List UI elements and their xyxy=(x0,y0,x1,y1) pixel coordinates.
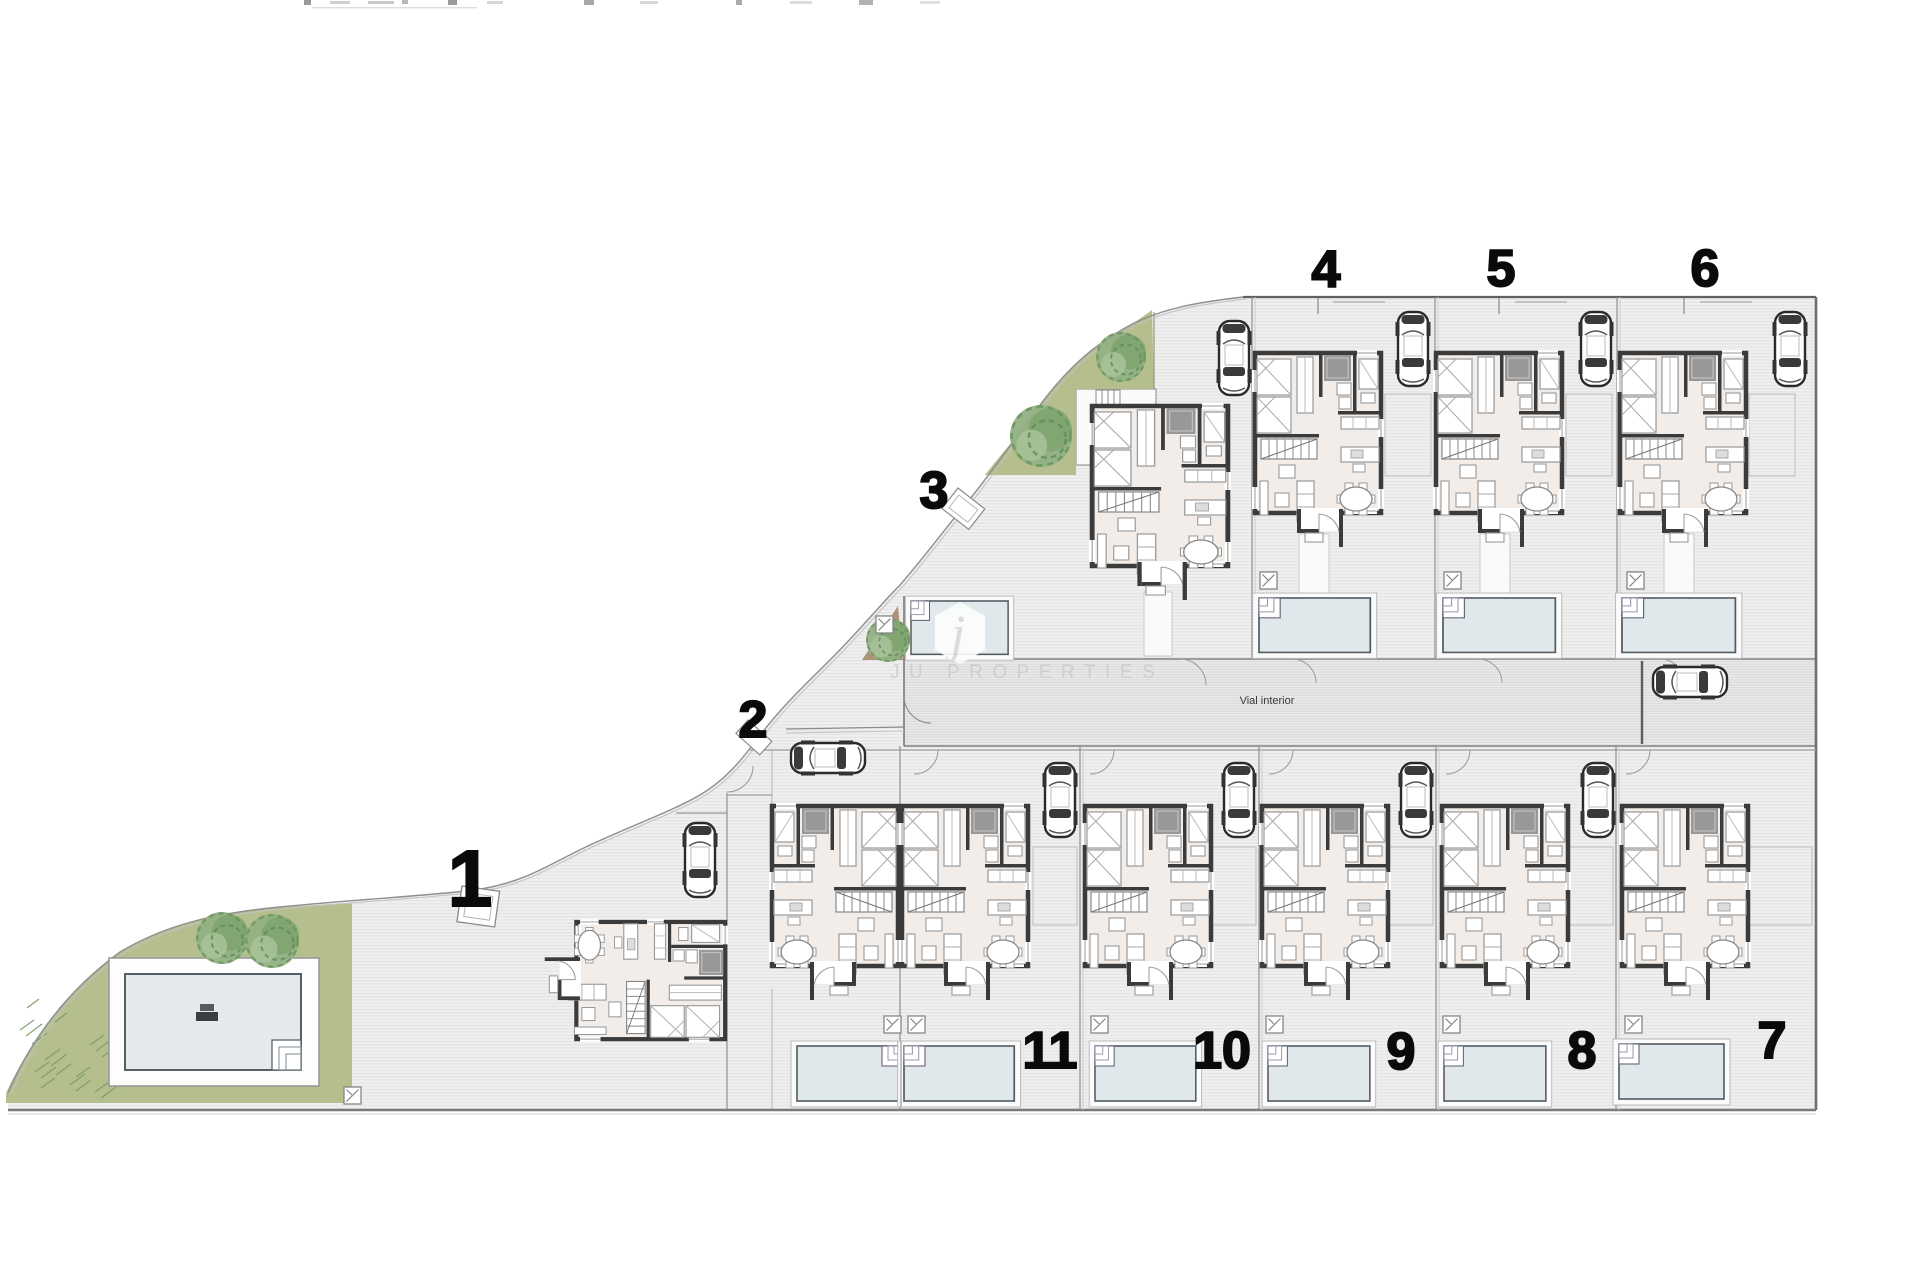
svg-text:6: 6 xyxy=(1691,240,1720,298)
svg-text:5: 5 xyxy=(1487,240,1516,298)
svg-text:2: 2 xyxy=(739,691,768,749)
svg-text:JU PROPERTIES: JU PROPERTIES xyxy=(890,662,1164,683)
svg-text:3: 3 xyxy=(920,462,949,520)
svg-text:Vial interior: Vial interior xyxy=(1240,695,1295,707)
svg-text:8: 8 xyxy=(1568,1022,1597,1080)
svg-text:11: 11 xyxy=(1023,1022,1078,1080)
svg-text:7: 7 xyxy=(1758,1012,1787,1070)
svg-text:10: 10 xyxy=(1193,1022,1251,1080)
svg-text:4: 4 xyxy=(1312,241,1341,299)
svg-text:9: 9 xyxy=(1387,1023,1416,1081)
svg-text:1: 1 xyxy=(448,834,493,923)
